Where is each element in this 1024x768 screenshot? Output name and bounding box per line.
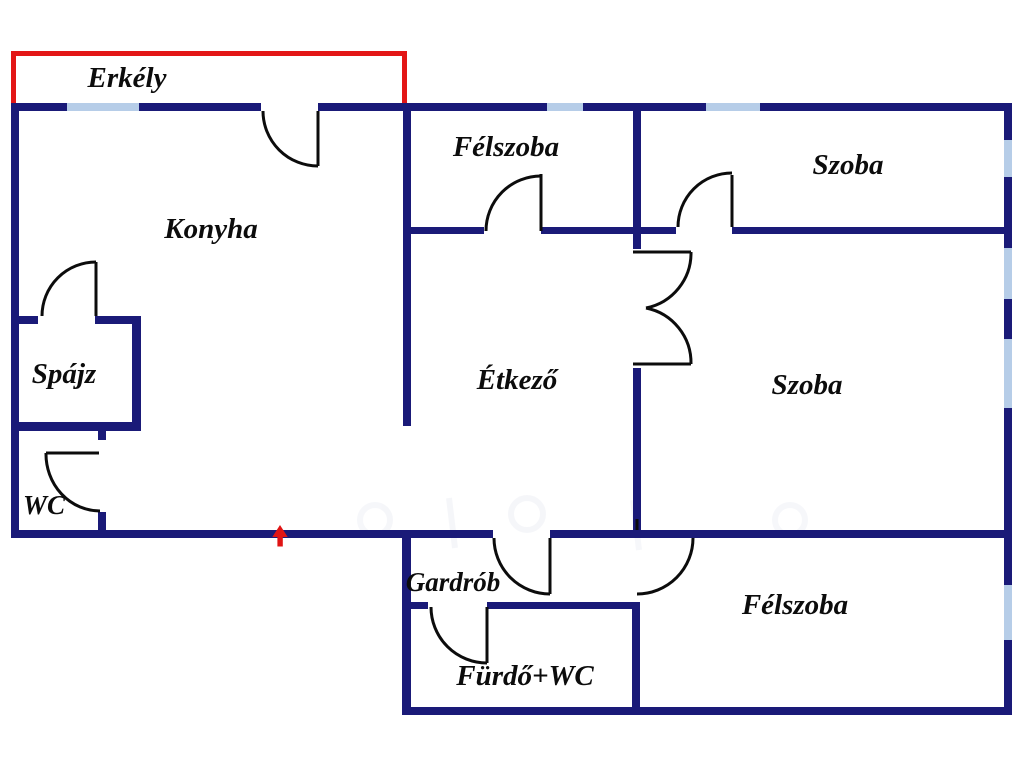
svg-text:Fürdő+WC: Fürdő+WC [455, 660, 594, 692]
svg-text:Spájz: Spájz [32, 358, 97, 390]
svg-text:Félszoba: Félszoba [452, 131, 559, 163]
svg-text:Szoba: Szoba [772, 369, 843, 401]
svg-text:Konyha: Konyha [163, 213, 257, 245]
svg-text:WC: WC [23, 490, 66, 520]
svg-text:Szoba: Szoba [813, 149, 884, 181]
svg-text:Erkély: Erkély [87, 62, 167, 94]
svg-text:Étkező: Étkező [476, 363, 559, 396]
svg-text:Gardrób: Gardrób [406, 567, 501, 597]
svg-text:Félszoba: Félszoba [741, 589, 848, 621]
